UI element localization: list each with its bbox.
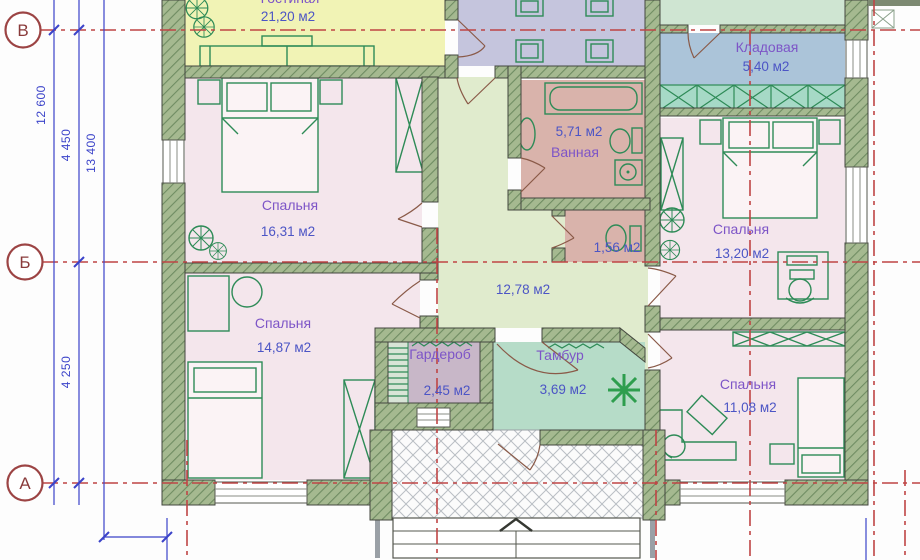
bathroom-name: Ванная (551, 144, 599, 160)
room-hall-corridor (438, 77, 508, 212)
bedroom2-area: 14,87 м2 (257, 340, 311, 355)
dimension-labels: 12 600 4 450 13 400 4 250 (34, 85, 98, 388)
living-area: 21,20 м2 (261, 9, 315, 24)
room-dining (458, 0, 645, 66)
kladovaya-area: 5,40 м2 (743, 59, 790, 74)
bedroom1-name: Спальня (262, 197, 318, 213)
bathroom-area: 5,71 м2 (556, 124, 603, 139)
axis-label-bottom: А (19, 474, 31, 493)
garderob-area: 2,45 м2 (424, 383, 471, 398)
room-hallway-top (660, 0, 845, 25)
floor-plan: В Б А 12 600 4 450 13 400 4 250 Гостиная… (0, 0, 920, 560)
bedroom4-area: 11,08 м2 (723, 400, 776, 415)
axis-label-middle: Б (19, 253, 30, 272)
bedroom2-name: Спальня (255, 315, 311, 331)
tambur-name: Тамбур (536, 347, 584, 363)
bedroom3-name: Спальня (713, 221, 769, 237)
window (846, 40, 867, 78)
window (680, 482, 785, 503)
bedroom1-area: 16,31 м2 (261, 224, 315, 239)
porch-steps (375, 518, 655, 558)
window (417, 408, 450, 427)
wc-area: 1,56 м2 (594, 240, 641, 255)
dim-left-inner: 13 400 (84, 133, 98, 173)
tambur-area: 3,69 м2 (540, 382, 587, 397)
garderob-name: Гардероб (409, 346, 471, 362)
living-name: Гостиная (261, 0, 320, 6)
hall-area: 12,78 м2 (496, 282, 550, 297)
window (846, 167, 867, 243)
dim-left-mid-upper: 4 450 (59, 129, 73, 162)
floor-plan-drawing: В Б А 12 600 4 450 13 400 4 250 Гостиная… (0, 0, 920, 560)
window (163, 140, 184, 183)
dimension-ticks (49, 25, 172, 542)
top-right-structures (868, 0, 920, 28)
dim-left-outer: 12 600 (34, 85, 48, 125)
window (215, 482, 307, 503)
axis-label-top: В (17, 21, 28, 40)
bedroom3-area: 13,20 м2 (715, 246, 769, 261)
dim-left-mid-lower: 4 250 (59, 356, 73, 389)
kladovaya-name: Кладовая (736, 39, 799, 55)
bedroom4-name: Спальня (720, 376, 776, 392)
